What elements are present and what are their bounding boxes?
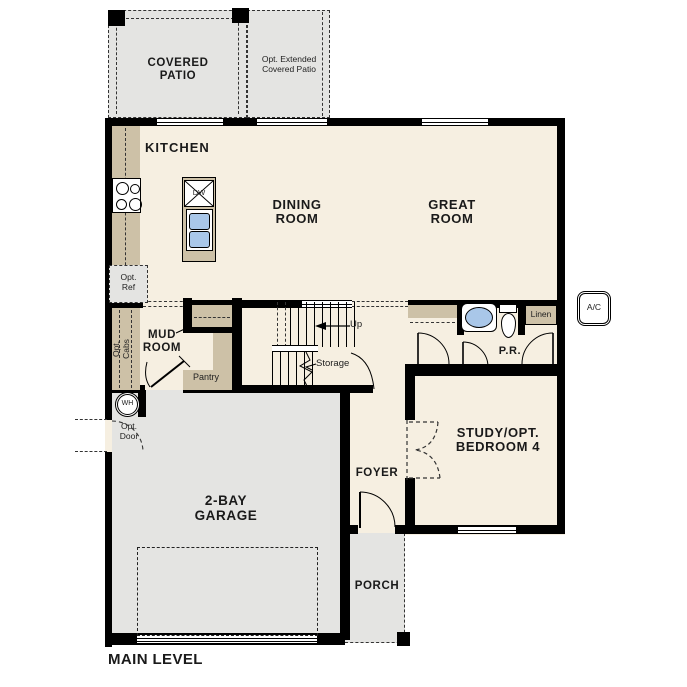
porch-label: PORCH (350, 580, 404, 593)
linen-closet: Linen (525, 305, 557, 325)
ac-unit: A/C (577, 291, 611, 326)
pantry-right-wall (232, 298, 242, 393)
pr-wall-2 (518, 305, 525, 335)
floor-plan: COVERED PATIO Opt. Extended Covered Pati… (0, 0, 687, 687)
foyer-label: FOYER (350, 467, 404, 480)
closet-left-wall (183, 298, 192, 333)
cooktop-burner (130, 184, 140, 194)
hall-closet-rod (410, 322, 455, 323)
opt-door-label: Opt. Door (112, 422, 146, 442)
study-window (458, 526, 516, 534)
great-room-label: GREAT ROOM (402, 198, 502, 227)
kitchen-mudroom-opening (143, 306, 188, 307)
storage-label: Storage (316, 359, 360, 370)
covered-patio-label: COVERED PATIO (123, 57, 233, 82)
pr-vanity (461, 303, 497, 332)
garage-right-wall (340, 390, 350, 640)
kitchen-label: KITCHEN (145, 141, 239, 155)
great-room-window (422, 118, 488, 126)
stairs-up-treads (290, 302, 357, 347)
pr-label: P.R. (488, 345, 532, 357)
kitchen-slider-window (157, 118, 223, 126)
pantry-label: Pantry (183, 372, 229, 382)
opt-door-landing-line (75, 419, 107, 420)
garage-label: 2-BAY GARAGE (176, 494, 276, 524)
wh-label: WH (116, 400, 139, 408)
closet-rod (194, 317, 230, 318)
stairs-rail-dash (285, 302, 286, 347)
coat-closet-shelf (192, 305, 232, 327)
sink-basin (189, 213, 210, 230)
opt-door-landing-line (75, 451, 107, 452)
cooktop-burner (129, 198, 142, 211)
dining-slider-window (257, 118, 327, 126)
study-top-wall (405, 364, 565, 376)
opt-ref-label: Opt. Ref (110, 273, 147, 293)
study-left-wall-lower (405, 478, 415, 533)
water-heater: WH (115, 392, 140, 417)
study-label: STUDY/OPT. BEDROOM 4 (428, 426, 568, 455)
exterior-wall-left-lower (105, 452, 112, 647)
kitchen-sink (186, 209, 213, 251)
patio-post (108, 10, 125, 26)
hall-opening (352, 301, 408, 302)
linen-label: Linen (526, 310, 556, 320)
stairs-storage-treads (272, 352, 318, 388)
stairs-landing-edge (272, 345, 318, 352)
cooktop (112, 178, 141, 213)
main-level-title: MAIN LEVEL (108, 652, 248, 669)
sink-basin (189, 231, 210, 248)
porch-post (397, 632, 410, 646)
dining-room-label: DINING ROOM (247, 198, 347, 227)
pr-sink-basin (465, 307, 493, 328)
dishwasher-label: DW (185, 189, 213, 198)
opt-ref-space: Opt. Ref (109, 265, 148, 303)
exterior-wall-right (557, 118, 565, 533)
cooktop-burner (116, 199, 127, 210)
patio-post (232, 8, 249, 23)
cooktop-burner (116, 182, 129, 195)
dishwasher: DW (184, 180, 214, 207)
stairs-rail-dash (277, 302, 278, 347)
mud-room-label: MUD ROOM (133, 329, 191, 354)
kitchen-mudroom-opening (143, 301, 188, 302)
up-label: Up (350, 320, 374, 331)
garage-door-swing-area (137, 547, 318, 636)
ac-label: A/C (578, 303, 610, 313)
opt-extended-patio-label: Opt. Extended Covered Patio (250, 55, 328, 75)
hall-opening (352, 306, 408, 307)
hall-closet-shelf (408, 305, 457, 318)
toilet-tank (499, 304, 517, 313)
study-left-wall-upper (405, 368, 415, 420)
